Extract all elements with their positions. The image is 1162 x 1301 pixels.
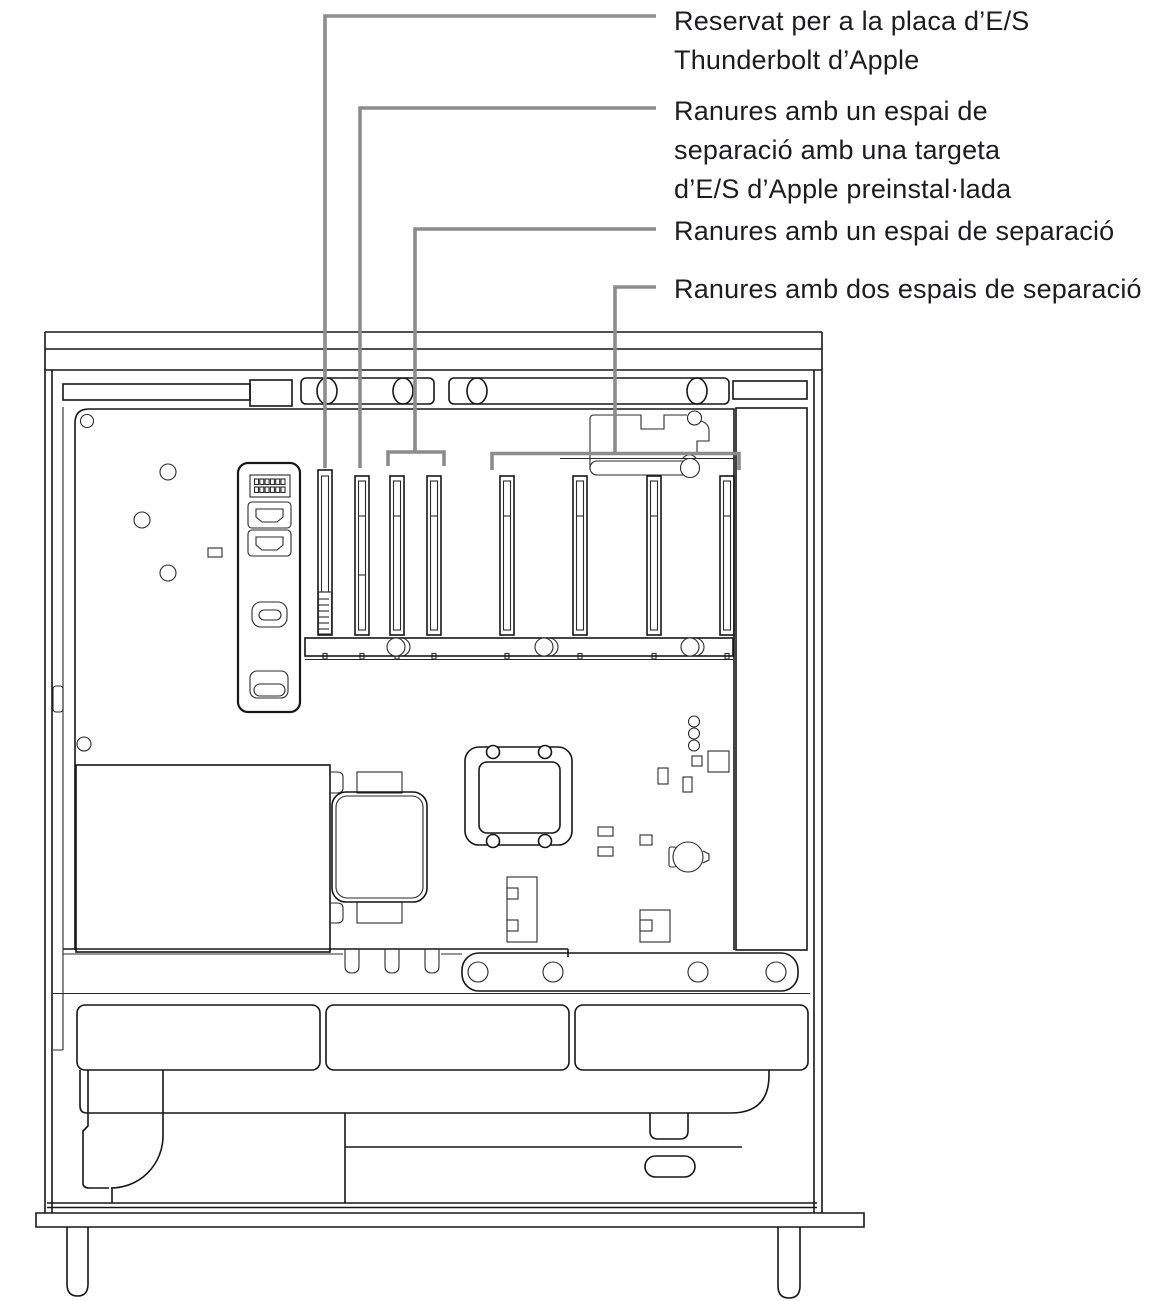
pcie-slot-1 bbox=[318, 470, 332, 659]
io-port-panel bbox=[238, 463, 300, 712]
power-connectors bbox=[507, 877, 670, 942]
pcie-slot-2 bbox=[355, 476, 369, 659]
power-supply bbox=[76, 765, 427, 952]
hdmi-port-2 bbox=[248, 530, 291, 556]
pcie-slot-4 bbox=[427, 476, 441, 659]
slot-rail bbox=[305, 638, 733, 660]
hdmi-port-1 bbox=[248, 502, 291, 528]
label-line: Ranures amb un espai de bbox=[674, 92, 1011, 131]
label-line: d’E/S d’Apple preinstal·lada bbox=[674, 170, 1011, 209]
fan-modules bbox=[53, 994, 810, 1071]
right-side-panel bbox=[736, 408, 807, 950]
power-port bbox=[250, 671, 288, 698]
pcie-slot-6 bbox=[573, 476, 587, 659]
usb-c-port bbox=[252, 602, 287, 627]
bottom-tray bbox=[80, 1070, 769, 1203]
pcie-slot-5 bbox=[500, 476, 514, 659]
cpu-bracket bbox=[465, 746, 572, 848]
callout-line-thunderbolt-io bbox=[325, 16, 656, 468]
callout-line-single-wide-card bbox=[360, 108, 656, 468]
bottom-rail bbox=[63, 949, 798, 991]
label-single-wide-slots-with-card: Ranures amb un espai de separació amb un… bbox=[674, 92, 1011, 209]
debug-connector bbox=[250, 475, 290, 497]
mac-pro-expansion-diagram: Reservat per a la placa d’E/S Thunderbol… bbox=[0, 0, 1162, 1301]
label-double-wide-slots: Ranures amb dos espais de separació bbox=[674, 270, 1142, 309]
pcie-slots bbox=[318, 470, 734, 659]
left-foot bbox=[67, 1227, 88, 1296]
label-line: Reservat per a la placa d’E/S bbox=[674, 2, 1029, 41]
label-thunderbolt-io-board: Reservat per a la placa d’E/S Thunderbol… bbox=[674, 2, 1029, 80]
pcie-slot-3 bbox=[390, 476, 404, 659]
pcie-slot-7 bbox=[647, 476, 661, 659]
air-duct bbox=[83, 1070, 163, 1203]
slot-latch-mechanism bbox=[560, 411, 734, 478]
pcie-slot-8 bbox=[720, 476, 734, 659]
top-rail bbox=[63, 378, 807, 406]
label-line: Ranures amb dos espais de separació bbox=[674, 270, 1142, 309]
label-single-wide-slots: Ranures amb un espai de separació bbox=[674, 212, 1114, 251]
battery bbox=[669, 842, 709, 872]
label-line: Thunderbolt d’Apple bbox=[674, 41, 1029, 80]
label-line: separació amb una targeta bbox=[674, 131, 1011, 170]
right-foot bbox=[778, 1227, 800, 1298]
label-line: Ranures amb un espai de separació bbox=[674, 212, 1114, 251]
board-components bbox=[598, 716, 729, 856]
